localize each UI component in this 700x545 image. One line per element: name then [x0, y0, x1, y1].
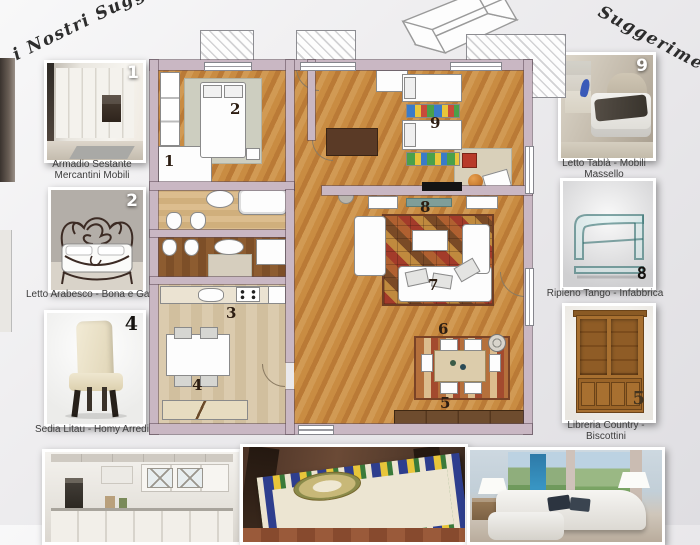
window [300, 62, 356, 71]
cropped-photo-edge [0, 230, 12, 332]
nightstand [246, 148, 260, 160]
chair [174, 375, 192, 387]
card-number: 4 [125, 315, 138, 334]
sofa-chaise [488, 512, 564, 540]
kitchen-lower-cabinet [162, 400, 248, 420]
card-caption: Letto Tablà - Mobili Massello [546, 158, 662, 180]
chair-leg [102, 387, 107, 411]
plan-label-4: 4 [192, 376, 202, 394]
cabinet-panel [611, 382, 625, 406]
chair [440, 382, 458, 394]
wall-shelf [101, 466, 133, 484]
balcony-hatch [296, 30, 356, 64]
wall [308, 60, 315, 140]
chair [464, 339, 482, 351]
terracotta-floor [243, 528, 465, 542]
card-number: 1 [127, 65, 139, 82]
kitchen-sink [198, 288, 224, 302]
chair [464, 382, 482, 394]
pillow [404, 123, 416, 147]
oven [65, 478, 83, 508]
plan-label-1: 1 [164, 152, 174, 170]
wall [524, 60, 532, 434]
round-decor [488, 334, 506, 352]
bidet [190, 212, 206, 230]
toy-box [462, 153, 477, 168]
cropped-photo-edge [0, 58, 15, 182]
caption-line: Letto Tablà - Mobili Massello [546, 158, 662, 180]
bathroom-sink [206, 190, 234, 208]
chair [440, 339, 458, 351]
card-caption: Ripieno Tango - Infabbrica [546, 288, 664, 299]
wall [150, 277, 290, 284]
shadow [65, 413, 127, 419]
toilet [162, 239, 177, 256]
glass-door [147, 468, 173, 488]
caption-line: Mercantini Mobili [20, 170, 164, 181]
wall [150, 60, 158, 434]
coffee-table [412, 230, 448, 251]
card-number: 8 [637, 266, 647, 283]
window [204, 62, 252, 71]
card-number: 5 [632, 390, 645, 408]
chair [174, 327, 192, 339]
kitchen-table [166, 334, 230, 376]
cabinet-panel [596, 382, 610, 406]
console-table [368, 196, 398, 209]
chair [200, 327, 218, 339]
plan-label-3: 3 [226, 304, 236, 322]
wall [286, 390, 294, 434]
counter-plant [119, 498, 127, 508]
plan-label-9: 9 [430, 114, 440, 132]
stove-cooktop [236, 287, 260, 302]
chair [421, 354, 433, 372]
bookcase-shelves [611, 319, 638, 375]
kids-desk [326, 128, 378, 156]
card-caption: Libreria Country - Biscottini [546, 420, 666, 442]
table-decor [450, 360, 456, 366]
kitchen-top-shelf [51, 454, 233, 462]
product-card-wardrobe: 1 [44, 60, 146, 163]
plan-label-8: 8 [420, 198, 430, 216]
fridge [268, 286, 286, 304]
shower [256, 239, 286, 265]
floor-rug [69, 146, 135, 159]
floor-lamp [618, 472, 650, 488]
chair [489, 354, 501, 372]
tv-niche [102, 95, 121, 122]
kitchen-photo [42, 449, 242, 545]
majolica-top-table-photo [243, 447, 465, 542]
plan-label-7: 7 [428, 276, 438, 294]
window [525, 268, 534, 326]
product-card-chair: 4 [44, 310, 146, 427]
pillow [203, 85, 222, 98]
caption-line: Letto Arabesco - Bona e Gava [14, 289, 172, 300]
plan-label-2: 2 [230, 100, 240, 118]
wall [286, 190, 294, 362]
caption-line: Libreria Country - Biscottini [546, 420, 666, 442]
toilet [166, 212, 182, 230]
card-number: 2 [126, 193, 138, 210]
glass-door [177, 468, 203, 488]
base-cabinets [51, 511, 233, 542]
card-caption: Sedia Litau - Homy Arredi [16, 424, 168, 435]
cabinet-panel [581, 382, 595, 406]
product-card-bed: 9 [558, 52, 656, 161]
tv [422, 182, 462, 191]
card-caption: Armadio Sestante Mercantini Mobili [20, 159, 164, 181]
pillow [224, 85, 243, 98]
product-card-bookcase: 5 [562, 303, 656, 423]
apartment-floorplan: 1 2 3 4 5 6 7 8 9 [150, 28, 534, 436]
counter-jar [105, 496, 115, 508]
console-table [466, 196, 498, 209]
board-title-left: i Nostri Sugge [10, 0, 161, 65]
caption-line: Sedia Litau - Homy Arredi [16, 424, 168, 435]
chair-seat [69, 373, 123, 391]
plan-label-5: 5 [440, 394, 450, 412]
white-corner-sofa-photo [470, 450, 662, 542]
pillow [404, 77, 416, 99]
livingroom-photo [467, 447, 665, 545]
aquarium [530, 454, 546, 494]
window [450, 62, 502, 71]
dark-pillow [569, 497, 590, 512]
window [525, 146, 534, 194]
kids-rug [406, 152, 460, 166]
table-photo [240, 444, 468, 545]
wardrobe-doors [56, 68, 134, 138]
caption-line: Ripieno Tango - Infabbrica [546, 288, 664, 299]
window [298, 425, 334, 435]
photo-floor [561, 142, 653, 158]
table-decor [460, 364, 466, 370]
wall [286, 60, 294, 190]
balcony-hatch [200, 30, 254, 64]
wall [150, 424, 532, 434]
chaise-longue [354, 216, 386, 276]
product-card-glass-table: 8 [560, 178, 656, 290]
chair [200, 375, 218, 387]
bathtub [238, 188, 288, 215]
plan-label-6: 6 [438, 320, 448, 338]
card-caption: Letto Arabesco - Bona e Gava [14, 289, 172, 300]
chair-back [76, 320, 114, 379]
white-classic-kitchen-photo [45, 452, 239, 542]
bidet [184, 239, 199, 256]
wall [150, 230, 290, 237]
wall [150, 182, 294, 190]
bookcase-shelves [580, 319, 607, 375]
wardrobe-unit [160, 72, 180, 146]
caption-line: Armadio Sestante [20, 159, 164, 170]
bathroom-sink [214, 239, 244, 255]
chair-leg [87, 387, 92, 411]
product-card-iron-bed: 2 [48, 187, 146, 293]
card-number: 9 [636, 58, 648, 75]
